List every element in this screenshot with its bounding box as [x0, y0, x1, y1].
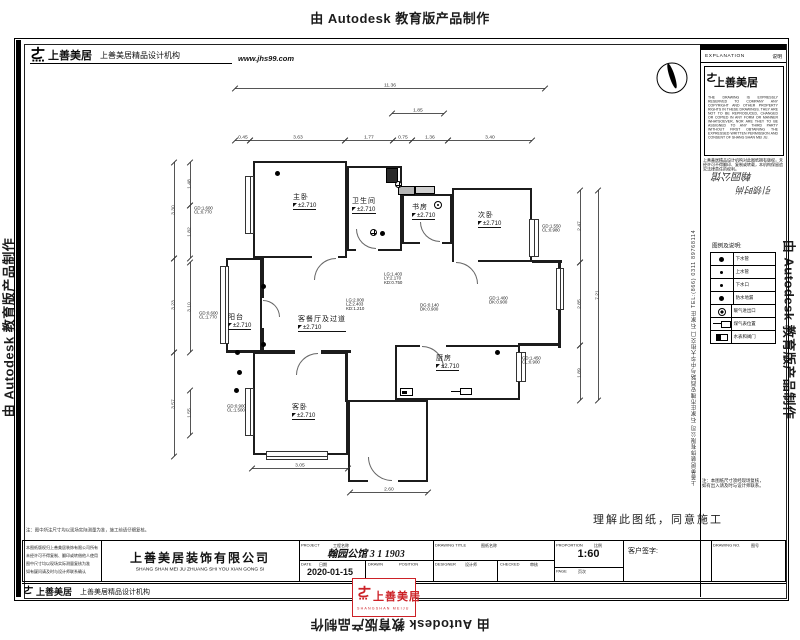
annotation-line: KD:1.210: [346, 307, 364, 311]
page-label-cn: 页次: [578, 569, 586, 575]
wall-segment: [518, 343, 560, 346]
legend-row: 上水管: [711, 266, 775, 279]
dimension-value: 2.85: [576, 299, 582, 309]
annotation-line: CL:0.770: [194, 210, 213, 214]
titleblock-note: 未经许可不得复制、翻印或转借他人使用: [26, 553, 98, 559]
project-stamp-line1: 翰园公馆: [712, 170, 752, 185]
room-outline: [226, 258, 262, 352]
dimension-value: 11.36: [384, 82, 396, 88]
client-signature-label: 客户签字:: [628, 546, 658, 556]
dimension-annotation: GD:1.450CL:0.900: [522, 356, 541, 365]
wall-segment: [226, 350, 351, 353]
drain-pipe-dot: [237, 370, 242, 375]
window-midline: [250, 389, 251, 435]
dimension-value: 1.48: [186, 179, 192, 189]
footer-logo-icon: [23, 585, 34, 596]
drain-pipe-dot: [380, 231, 385, 236]
titleblock-note: 如有疑问请及时与设计师联系确认: [26, 569, 86, 575]
room-label: 卫生间±2.710: [352, 196, 376, 214]
project-name: 翰园公馆 3 1 1903: [299, 545, 433, 560]
shaft-box: [398, 186, 415, 195]
window-symbol: [556, 268, 564, 310]
drain-cross: [396, 185, 401, 186]
legend-label: 暖气进出口: [732, 308, 756, 315]
annotation-line: CL:0.980: [542, 228, 561, 232]
date-label: DATE: [301, 562, 311, 567]
elevation-mark: ±2.710: [298, 325, 346, 332]
cell-divider: [299, 560, 433, 561]
explanation-title: EXPLANATION: [705, 53, 745, 58]
legend-row: 防水地漏: [711, 292, 775, 305]
window-symbol: [245, 176, 254, 234]
titleblock-note: 本图纸版权归上善美居装饰有限公司所有: [26, 545, 98, 551]
room-name: 厨房: [436, 353, 459, 363]
dimension-line: [350, 492, 428, 493]
dimension-value: 1.55: [186, 408, 192, 418]
elevation-value: ±2.710: [297, 413, 315, 419]
footer-logo-text: 上善美居: [36, 585, 72, 598]
ring-legend-icon: [711, 305, 732, 317]
elevation-value: ±2.710: [483, 221, 501, 227]
legend-row: 下水口: [711, 279, 775, 292]
room-name: 主卧: [293, 192, 316, 202]
elevation-mark: ±2.710: [478, 221, 501, 228]
legend-row: 暖气进出口: [711, 305, 775, 318]
dimension-value: 3.40: [485, 134, 495, 140]
designer-label: DESIGNER: [435, 562, 456, 567]
elevation-value: ±2.710: [298, 203, 316, 209]
drawing-no-label: DRAWING NO.: [713, 543, 740, 548]
drain-pipe-dot: [495, 350, 500, 355]
dimension-line: [235, 88, 545, 89]
door-opening: [420, 242, 442, 247]
window-midline: [534, 220, 535, 256]
dimension-value: 1.36: [425, 134, 435, 140]
elevation-mark: ±2.710: [228, 323, 251, 330]
legend-label: 下水管: [734, 256, 757, 263]
radiator-core: [437, 204, 439, 206]
cad-drawing-sheet: 由 Autodesk 教育版产品制作 由 Autodesk 教育版产品制作 由 …: [0, 0, 800, 640]
legend-label: 煤气表位置: [732, 321, 756, 328]
company-red-stamp: 上善美居 SHANGSHAN MEIJU: [352, 578, 416, 617]
door-opening: [356, 249, 378, 254]
legend-label: 下水口: [734, 282, 757, 289]
company-cell: 上善美居装饰有限公司 SHANG SHAN MEI JU ZHUANG SHI …: [101, 541, 300, 581]
dimension-line: [250, 140, 345, 141]
elevation-flag-icon: [478, 221, 482, 225]
annotation-line: DK:0.900: [420, 307, 439, 311]
elevation-mark: ±2.710: [436, 364, 459, 371]
designer-label-cn: 设计师: [465, 562, 477, 568]
dot-legend-icon: [711, 253, 734, 265]
company-contact-vertical: 上善美居装饰有限公司 石家庄市槐安西路与中华大街交口 石家庄 TEL:(866)…: [690, 214, 697, 486]
gas-meter-symbol: [460, 388, 472, 395]
elevation-mark: ±2.710: [292, 413, 315, 420]
annotation-line: DK:0.900: [489, 300, 508, 304]
checker-label-cn: 审核: [530, 562, 538, 568]
dimension-line: [345, 140, 393, 141]
footer-org-text: 上善美居精品设计机构: [80, 587, 150, 597]
meter-legend-icon: [711, 331, 732, 343]
drawing-title-cell: DRAWING TITLE 图纸名称 DESIGNER 设计师 CHECKED …: [433, 541, 555, 581]
window-symbol: [266, 451, 328, 460]
legend-row: 水表和阀门: [711, 331, 775, 343]
legend-label: 防水地漏: [734, 295, 757, 302]
window-midline: [225, 267, 226, 343]
elevation-value: ±2.710: [357, 207, 375, 213]
signature-cell: 客户签字:: [623, 541, 712, 581]
room-label: 次卧±2.710: [478, 210, 501, 228]
cell-divider: [497, 560, 498, 581]
room-name: 阳台: [228, 312, 251, 322]
room-name: 次卧: [478, 210, 501, 220]
room-label: 客卧±2.710: [292, 402, 315, 420]
legend-label: 上水管: [734, 269, 757, 276]
window-midline: [250, 177, 251, 233]
dimension-value: 2.60: [384, 486, 394, 492]
floor-drain-symbol: [395, 181, 402, 188]
explanation-title-cn: 说明: [772, 53, 782, 60]
stamp-logo-icon: [357, 585, 372, 600]
room-label: 主卧±2.710: [293, 192, 316, 210]
drawing-no-cell: DRAWING NO. 图号: [711, 541, 784, 581]
project-stamp-line2: 引领时尚: [736, 184, 772, 197]
room-label: 阳台±2.710: [228, 312, 251, 330]
drain-cross: [371, 233, 376, 234]
room-name: 书房: [412, 202, 435, 212]
date-value: 2020-01-15: [307, 567, 353, 577]
room-name: 客餐厅及过道: [298, 314, 346, 324]
dimension-annotation: GD:1.550CL:0.980: [542, 224, 561, 233]
titleblock-note: 图中尺寸均以现场实际测量复核为准: [26, 561, 90, 567]
shaft-box: [415, 186, 435, 194]
dimension-value: 7.21: [594, 290, 600, 300]
sidebar-logo-text: 上善美居: [714, 74, 758, 90]
dimension-annotation: LG:2.000LZ:2.403KD:1.210: [346, 298, 364, 311]
sidebar-notes: 注：本图纸尺寸须经现场复核， 如有出入请及时与设计师联系。: [702, 478, 785, 488]
dimension-annotation: GD:1.400DK:0.900: [489, 296, 508, 305]
dimension-value: 1.82: [186, 227, 192, 237]
scale-cell: PROPORTION 比例 1:60 PAGE 页次: [554, 541, 624, 581]
dimension-line: [412, 140, 448, 141]
drawing-no-label-cn: 图号: [751, 543, 759, 549]
water-meter-core: [402, 391, 407, 394]
dimension-value: 3.63: [293, 134, 303, 140]
drain-pipe-dot: [275, 171, 280, 176]
dimension-value: 3.05: [295, 462, 305, 468]
company-name: 上善美居装饰有限公司: [101, 549, 299, 566]
stamp-subtext: SHANGSHAN MEIJU: [357, 607, 410, 611]
scale-label: PROPORTION: [556, 543, 583, 548]
legend-label: 水表和阀门: [732, 334, 756, 341]
annotation-line: CL:1.500: [227, 408, 246, 412]
page-label: PAGE: [556, 569, 567, 574]
elevation-mark: ±2.710: [352, 207, 376, 214]
annotation-line: CL:0.900: [522, 360, 541, 364]
room-name: 卫生间: [352, 196, 376, 206]
water-meter-symbol: [400, 388, 413, 396]
gas-meter-lead: [451, 391, 460, 392]
window-symbol: [220, 266, 229, 344]
dimension-annotation: LG:1.403LY:2.170KD:0.750: [384, 272, 402, 285]
dimension-value: 3.57: [170, 399, 176, 409]
copyright-english: THE DRAWING IS EXPRESSLY RESERVED TO COM…: [708, 96, 778, 140]
dimension-value: 3.30: [170, 205, 176, 215]
drawing-title-label: DRAWING TITLE: [435, 543, 466, 548]
stamp-text: 上善美居: [373, 588, 421, 604]
dimension-value: 1.77: [364, 134, 374, 140]
elevation-flag-icon: [293, 203, 297, 207]
drain-pipe-dot: [235, 350, 240, 355]
gas-legend-icon: [711, 318, 732, 330]
sheet-note: 注：图中所注尺寸均以现场实际测量为准，施工前请仔细复核。: [26, 527, 246, 533]
dimension-annotation: DG:0.140DK:0.900: [420, 303, 439, 312]
title-block: 本图纸版权归上善美居装饰有限公司所有 未经许可不得复制、翻印或转借他人使用 图中…: [22, 540, 786, 582]
dimension-annotation: GD:0.600CL:1.770: [199, 311, 218, 320]
elevation-flag-icon: [436, 364, 440, 368]
cell-divider: [433, 560, 554, 561]
dot-legend-icon: [711, 292, 734, 304]
floor-drain-symbol: [370, 229, 377, 236]
drain-pipe-dot: [234, 388, 239, 393]
sidebar-note-line: 如有出入请及时与设计师联系。: [702, 483, 785, 488]
dot-sm-legend-icon: [711, 266, 734, 278]
elevation-flag-icon: [412, 213, 416, 217]
legend-row: 下水管: [711, 253, 775, 266]
dimension-annotation: GD:1.600CL:0.770: [194, 206, 213, 215]
elevation-value: ±2.710: [303, 325, 321, 331]
drawn-label: DRAWN: [368, 562, 383, 567]
legend-table: 下水管上水管下水口防水地漏暖气进出口煤气表位置水表和阀门: [710, 252, 776, 344]
window-symbol: [529, 219, 539, 257]
company-name-pinyin: SHANG SHAN MEI JU ZHUANG SHI YOU XIAN GO…: [136, 567, 264, 572]
dot-sm-legend-icon: [711, 279, 734, 291]
dimension-line: [252, 468, 348, 469]
dimension-value: 3.10: [186, 302, 192, 312]
elevation-flag-icon: [298, 325, 302, 329]
elevation-mark: ±2.710: [412, 213, 435, 220]
legend-row: 煤气表位置: [711, 318, 775, 331]
dimension-annotation: GD:0.900CL:1.500: [227, 404, 246, 413]
room-name: 客卧: [292, 402, 315, 412]
drain-pipe-dot: [261, 284, 266, 289]
dimension-line: [448, 140, 532, 141]
project-cell: PROJECT 工程名称 翰园公馆 3 1 1903 DATE 日期 2020-…: [299, 541, 434, 581]
elevation-flag-icon: [352, 207, 356, 211]
drain-pipe-dot: [261, 342, 266, 347]
annotation-line: CL:1.770: [199, 315, 218, 319]
elevation-mark: ±2.710: [293, 203, 316, 210]
checker-label: CHECKED: [500, 562, 520, 567]
dimension-line: [392, 113, 444, 114]
cell-divider: [554, 567, 623, 568]
scale-value: 1:60: [554, 548, 623, 560]
drawing-title-label-cn: 图纸名称: [481, 543, 497, 549]
dimension-value: 1.89: [576, 368, 582, 378]
dimension-value: 3.23: [170, 300, 176, 310]
dimension-value: 2.47: [576, 221, 582, 231]
room-label: 客餐厅及过道±2.710: [298, 314, 346, 332]
door-swing-arc: [263, 300, 280, 317]
dimension-value: 0.45: [238, 134, 248, 140]
room-label: 书房±2.710: [412, 202, 435, 220]
annotation-line: KD:0.750: [384, 281, 402, 285]
titleblock-notes-cell: 本图纸版权归上善美居装饰有限公司所有 未经许可不得复制、翻印或转借他人使用 图中…: [23, 541, 102, 581]
door-opening: [368, 480, 398, 485]
dimension-value: 0.75: [398, 134, 408, 140]
window-midline: [267, 456, 327, 457]
position-label: POSITION: [399, 562, 418, 567]
wall-segment: [345, 352, 348, 402]
elevation-value: ±2.710: [233, 323, 251, 329]
legend-title: 图例及说明:: [712, 242, 742, 250]
dimension-value: 1.85: [413, 107, 423, 113]
explanation-header: EXPLANATION 说明: [700, 50, 786, 63]
elevation-flag-icon: [228, 323, 232, 327]
window-midline: [560, 269, 561, 309]
elevation-value: ±2.710: [441, 364, 459, 370]
window-symbol: [245, 388, 254, 436]
elevation-value: ±2.710: [417, 213, 435, 219]
room-label: 厨房±2.710: [436, 353, 459, 371]
elevation-flag-icon: [292, 413, 296, 417]
